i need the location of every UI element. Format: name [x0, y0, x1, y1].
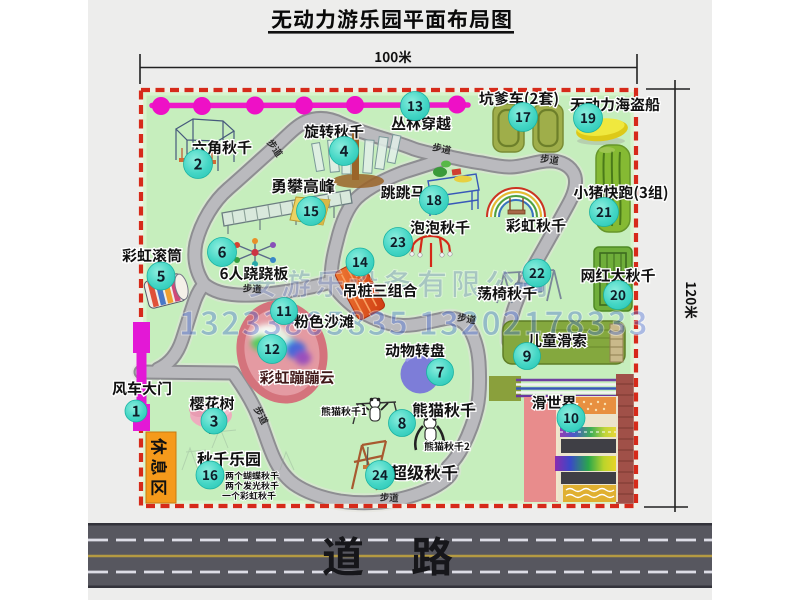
svg-text:1: 1: [132, 401, 141, 422]
svg-text:动物转盘: 动物转盘: [385, 340, 445, 361]
svg-text:泡泡秋千: 泡泡秋千: [410, 217, 470, 238]
svg-text:休息区: 休息区: [148, 438, 173, 500]
svg-text:熊猫秋千: 熊猫秋千: [412, 397, 476, 421]
svg-text:熊猫秋千1: 熊猫秋千1: [321, 403, 367, 418]
svg-text:19: 19: [580, 107, 596, 127]
svg-text:18: 18: [426, 189, 442, 209]
svg-text:无动力游乐园平面布局图: 无动力游乐园平面布局图: [271, 4, 513, 34]
svg-text:13: 13: [407, 95, 423, 115]
svg-text:路: 路: [411, 524, 453, 585]
svg-text:17: 17: [515, 106, 531, 126]
svg-text:2: 2: [194, 154, 203, 175]
svg-text:超级秋千: 超级秋千: [390, 459, 458, 484]
svg-text:6: 6: [218, 242, 227, 263]
svg-text:4: 4: [340, 141, 349, 162]
svg-text:步道: 步道: [379, 489, 399, 504]
svg-text:16: 16: [202, 464, 218, 484]
svg-text:彩虹蹦蹦云: 彩虹蹦蹦云: [259, 367, 334, 388]
svg-text:步道: 步道: [539, 151, 560, 168]
svg-text:7: 7: [436, 362, 445, 383]
svg-text:风车大门: 风车大门: [112, 378, 172, 399]
svg-text:粉色沙滩: 粉色沙滩: [294, 311, 354, 332]
svg-text:旋转秋千: 旋转秋千: [304, 121, 364, 142]
svg-text:20: 20: [610, 284, 626, 304]
svg-text:24: 24: [372, 464, 388, 484]
svg-text:吊桩三组合: 吊桩三组合: [342, 280, 417, 301]
svg-text:小猪快跑(3组): 小猪快跑(3组): [573, 182, 668, 203]
svg-text:8: 8: [398, 413, 407, 434]
svg-text:6人跷跷板: 6人跷跷板: [220, 263, 289, 284]
svg-text:120米: 120米: [682, 281, 702, 319]
svg-text:3: 3: [210, 411, 219, 432]
svg-text:荡椅秋千: 荡椅秋千: [477, 283, 537, 304]
svg-text:14: 14: [352, 251, 368, 271]
svg-text:9: 9: [523, 346, 532, 367]
svg-text:熊猫秋千2: 熊猫秋千2: [424, 438, 470, 453]
svg-text:23: 23: [390, 231, 406, 251]
svg-text:12: 12: [264, 338, 280, 358]
svg-text:10: 10: [563, 407, 579, 427]
svg-text:11: 11: [276, 300, 292, 320]
svg-text:一个彩虹秋千: 一个彩虹秋千: [222, 489, 276, 502]
svg-text:彩虹滚筒: 彩虹滚筒: [122, 245, 182, 266]
svg-text:跳跳马: 跳跳马: [380, 182, 425, 203]
svg-text:100米: 100米: [374, 46, 412, 66]
svg-text:21: 21: [596, 201, 612, 221]
svg-text:15: 15: [303, 200, 319, 220]
svg-text:彩虹秋千: 彩虹秋千: [506, 215, 566, 236]
svg-text:勇攀高峰: 勇攀高峰: [271, 173, 335, 197]
svg-text:道: 道: [322, 524, 364, 585]
svg-text:22: 22: [529, 262, 545, 282]
svg-text:5: 5: [157, 266, 166, 287]
